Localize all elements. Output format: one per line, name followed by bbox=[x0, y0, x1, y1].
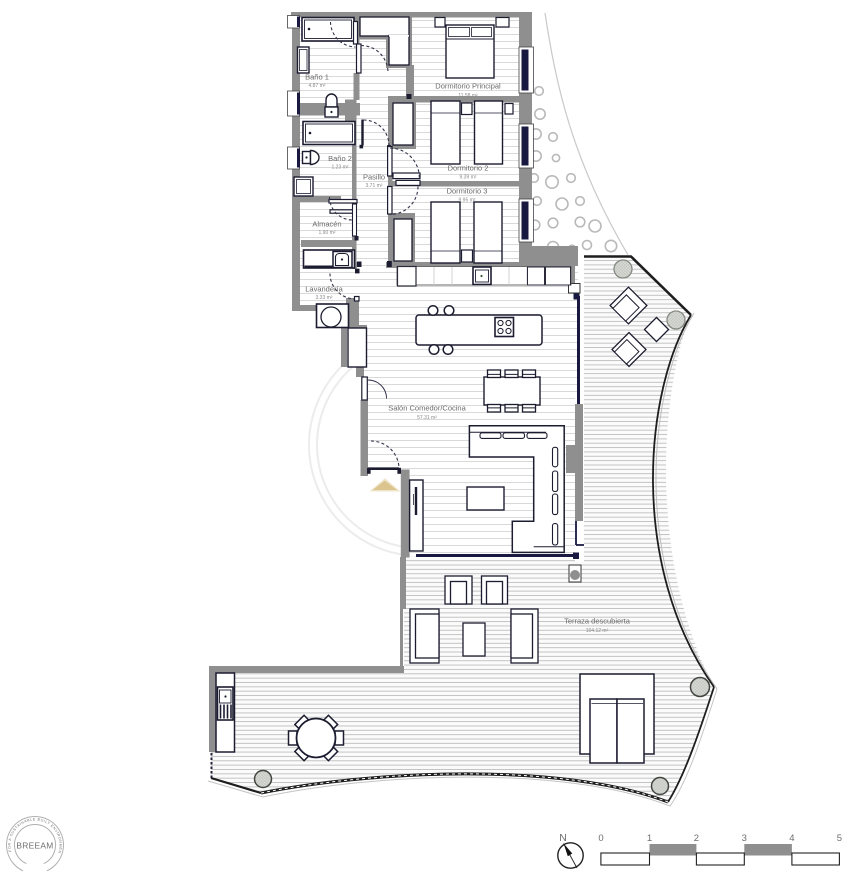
svg-text:Pasillo: Pasillo bbox=[363, 173, 385, 182]
svg-text:9.39 m²: 9.39 m² bbox=[460, 175, 477, 181]
svg-text:N: N bbox=[559, 832, 567, 844]
svg-text:3.71 m²: 3.71 m² bbox=[366, 183, 383, 189]
svg-text:Baño 2: Baño 2 bbox=[328, 154, 352, 163]
svg-text:Salón Comedor/Cocina: Salón Comedor/Cocina bbox=[388, 404, 466, 413]
svg-text:Terraza descubierta: Terraza descubierta bbox=[564, 617, 631, 626]
svg-text:Dormitorio Principal: Dormitorio Principal bbox=[435, 82, 501, 91]
svg-text:104.12 m²: 104.12 m² bbox=[586, 628, 609, 634]
svg-text:11.58 m²: 11.58 m² bbox=[458, 93, 478, 99]
svg-text:Almacén: Almacén bbox=[312, 220, 341, 229]
svg-text:1.23 m²: 1.23 m² bbox=[332, 165, 349, 171]
svg-text:57.31 m²: 57.31 m² bbox=[417, 415, 437, 421]
svg-text:4.87 m²: 4.87 m² bbox=[309, 83, 326, 89]
svg-text:BREEAM: BREEAM bbox=[16, 841, 53, 851]
svg-text:FOR A SUSTAINABLE BUILT ENVIRO: FOR A SUSTAINABLE BUILT ENVIRONMENT bbox=[0, 0, 63, 854]
svg-text:Dormitorio 3: Dormitorio 3 bbox=[447, 187, 488, 196]
svg-text:Lavandería: Lavandería bbox=[305, 285, 343, 294]
svg-text:1: 1 bbox=[647, 833, 652, 844]
svg-text:1.90 m²: 1.90 m² bbox=[319, 230, 336, 236]
svg-text:5: 5 bbox=[837, 833, 842, 844]
svg-text:3: 3 bbox=[742, 833, 747, 844]
svg-text:Dormitorio 2: Dormitorio 2 bbox=[448, 164, 489, 173]
svg-text:0: 0 bbox=[598, 833, 603, 844]
svg-text:3.33 m²: 3.33 m² bbox=[316, 295, 333, 301]
svg-text:2: 2 bbox=[694, 833, 699, 844]
svg-text:Baño 1: Baño 1 bbox=[305, 73, 329, 82]
svg-text:9.95 m²: 9.95 m² bbox=[459, 198, 476, 204]
svg-text:4: 4 bbox=[789, 833, 794, 844]
